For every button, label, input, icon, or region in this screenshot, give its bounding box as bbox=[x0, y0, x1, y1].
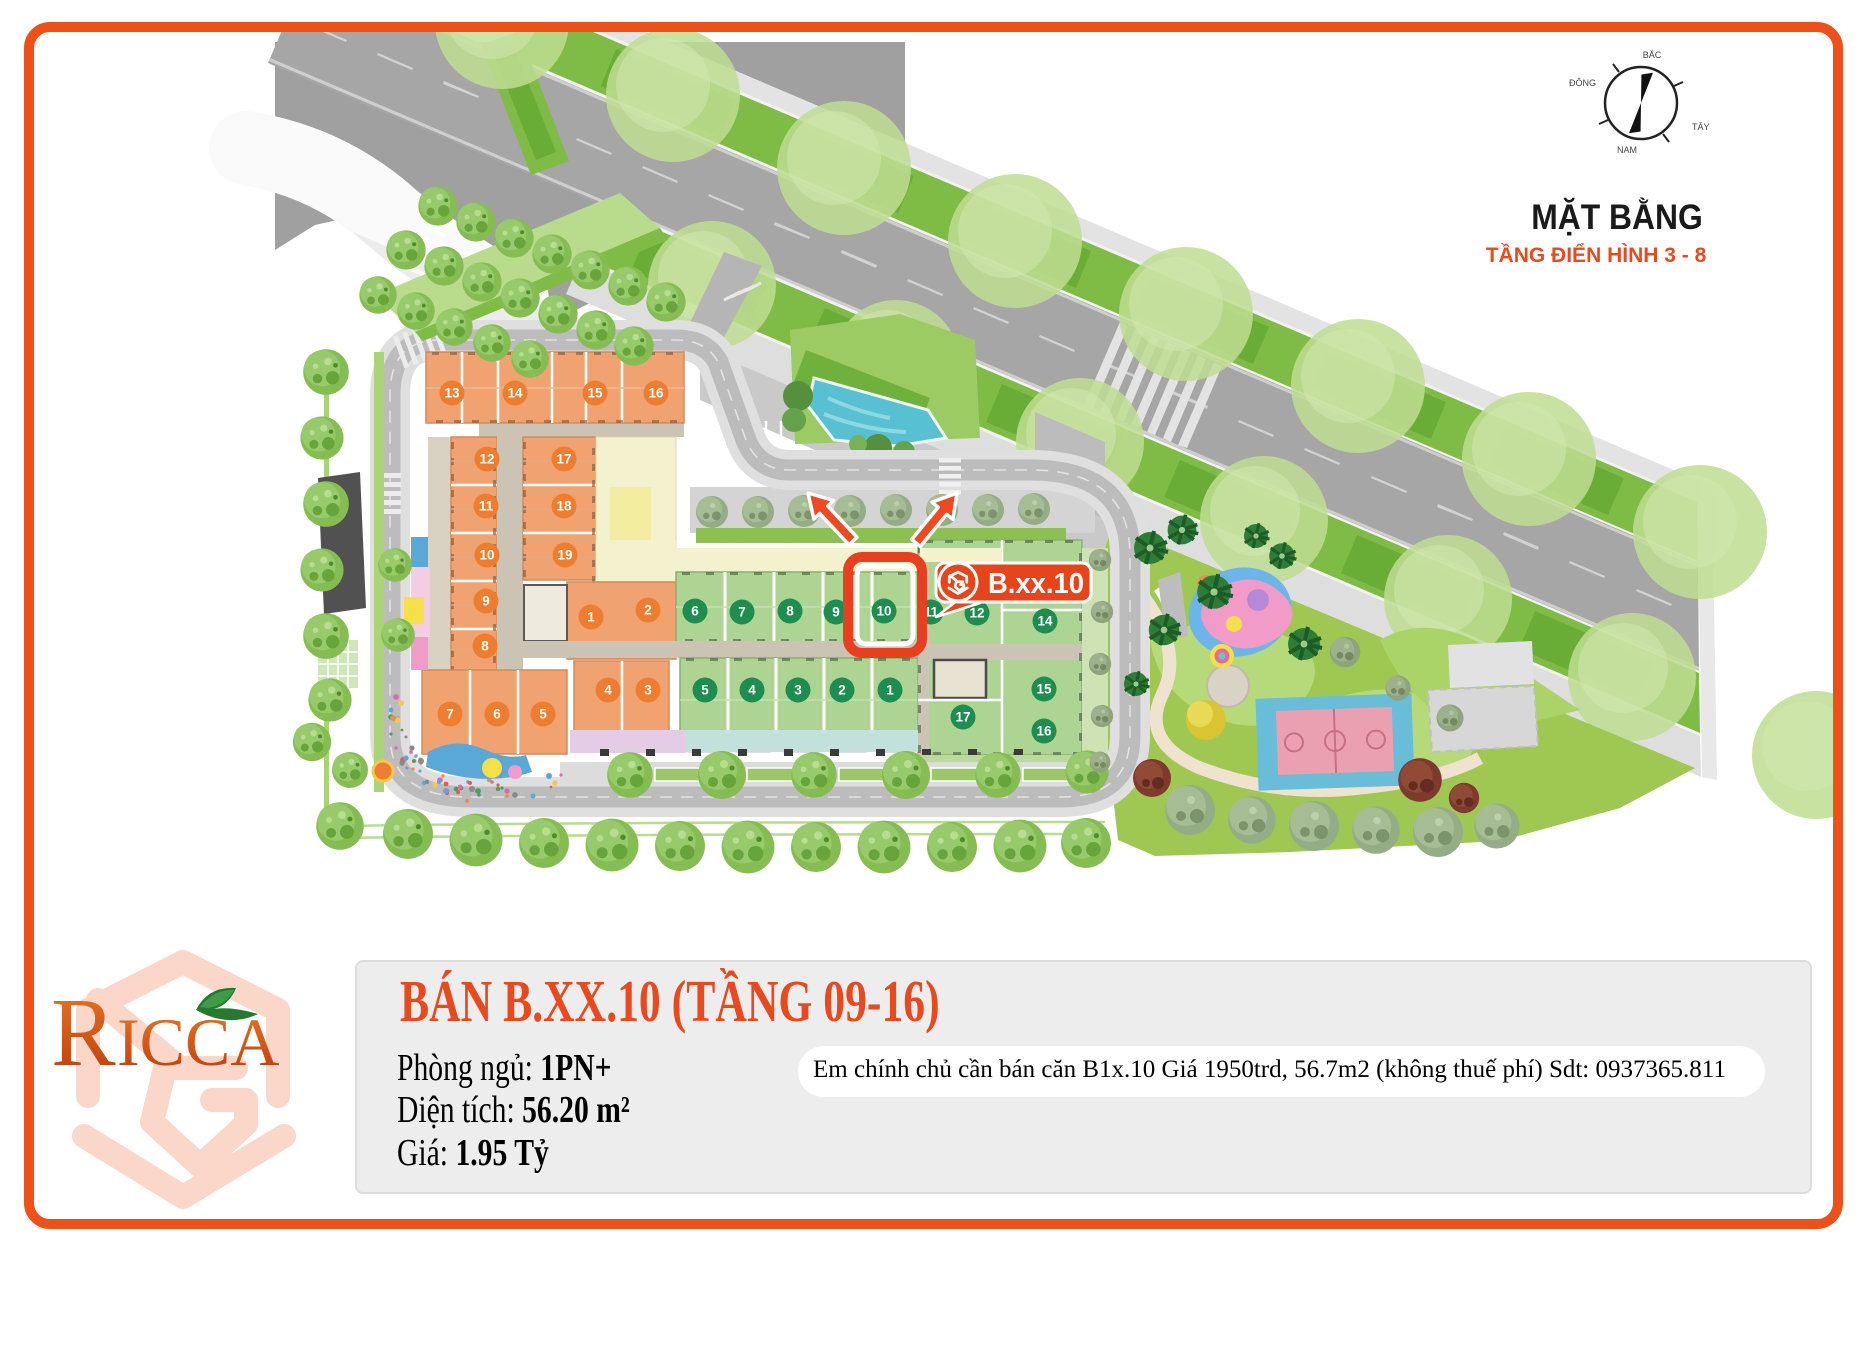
svg-text:12: 12 bbox=[969, 606, 984, 621]
svg-text:BẮC: BẮC bbox=[1643, 50, 1662, 60]
svg-text:ĐÔNG: ĐÔNG bbox=[1569, 78, 1596, 88]
svg-text:R: R bbox=[51, 979, 116, 1086]
svg-text:13: 13 bbox=[444, 386, 460, 401]
svg-text:17: 17 bbox=[955, 710, 970, 725]
svg-text:10: 10 bbox=[876, 604, 891, 619]
svg-text:7: 7 bbox=[738, 605, 746, 620]
svg-text:14: 14 bbox=[1037, 614, 1053, 629]
svg-text:1: 1 bbox=[587, 610, 595, 625]
svg-text:3: 3 bbox=[644, 683, 652, 698]
svg-text:11: 11 bbox=[479, 499, 494, 514]
svg-text:1: 1 bbox=[886, 683, 894, 698]
svg-text:NAM: NAM bbox=[1617, 145, 1637, 155]
svg-text:7: 7 bbox=[446, 707, 454, 722]
svg-text:10: 10 bbox=[479, 548, 494, 563]
svg-text:3: 3 bbox=[794, 683, 802, 698]
svg-text:2: 2 bbox=[838, 683, 846, 698]
svg-text:5: 5 bbox=[701, 683, 709, 698]
svg-text:9: 9 bbox=[482, 594, 490, 609]
svg-text:19: 19 bbox=[557, 548, 572, 563]
svg-text:ICCA: ICCA bbox=[117, 1004, 279, 1080]
svg-text:15: 15 bbox=[1036, 682, 1052, 697]
svg-text:15: 15 bbox=[587, 386, 603, 401]
svg-text:2: 2 bbox=[644, 603, 652, 618]
svg-text:18: 18 bbox=[556, 499, 572, 514]
svg-text:8: 8 bbox=[786, 604, 794, 619]
svg-text:TÂY: TÂY bbox=[1692, 122, 1710, 132]
svg-text:12: 12 bbox=[479, 452, 494, 467]
svg-text:14: 14 bbox=[507, 386, 523, 401]
svg-text:B.xx.10: B.xx.10 bbox=[988, 568, 1084, 600]
svg-text:8: 8 bbox=[481, 639, 489, 654]
svg-text:6: 6 bbox=[493, 707, 501, 722]
svg-text:4: 4 bbox=[604, 683, 612, 698]
svg-text:5: 5 bbox=[539, 707, 547, 722]
svg-text:16: 16 bbox=[1036, 724, 1052, 739]
svg-text:4: 4 bbox=[748, 683, 756, 698]
svg-text:17: 17 bbox=[556, 452, 571, 467]
svg-text:6: 6 bbox=[691, 604, 699, 619]
svg-text:9: 9 bbox=[832, 605, 840, 620]
svg-text:16: 16 bbox=[648, 386, 664, 401]
